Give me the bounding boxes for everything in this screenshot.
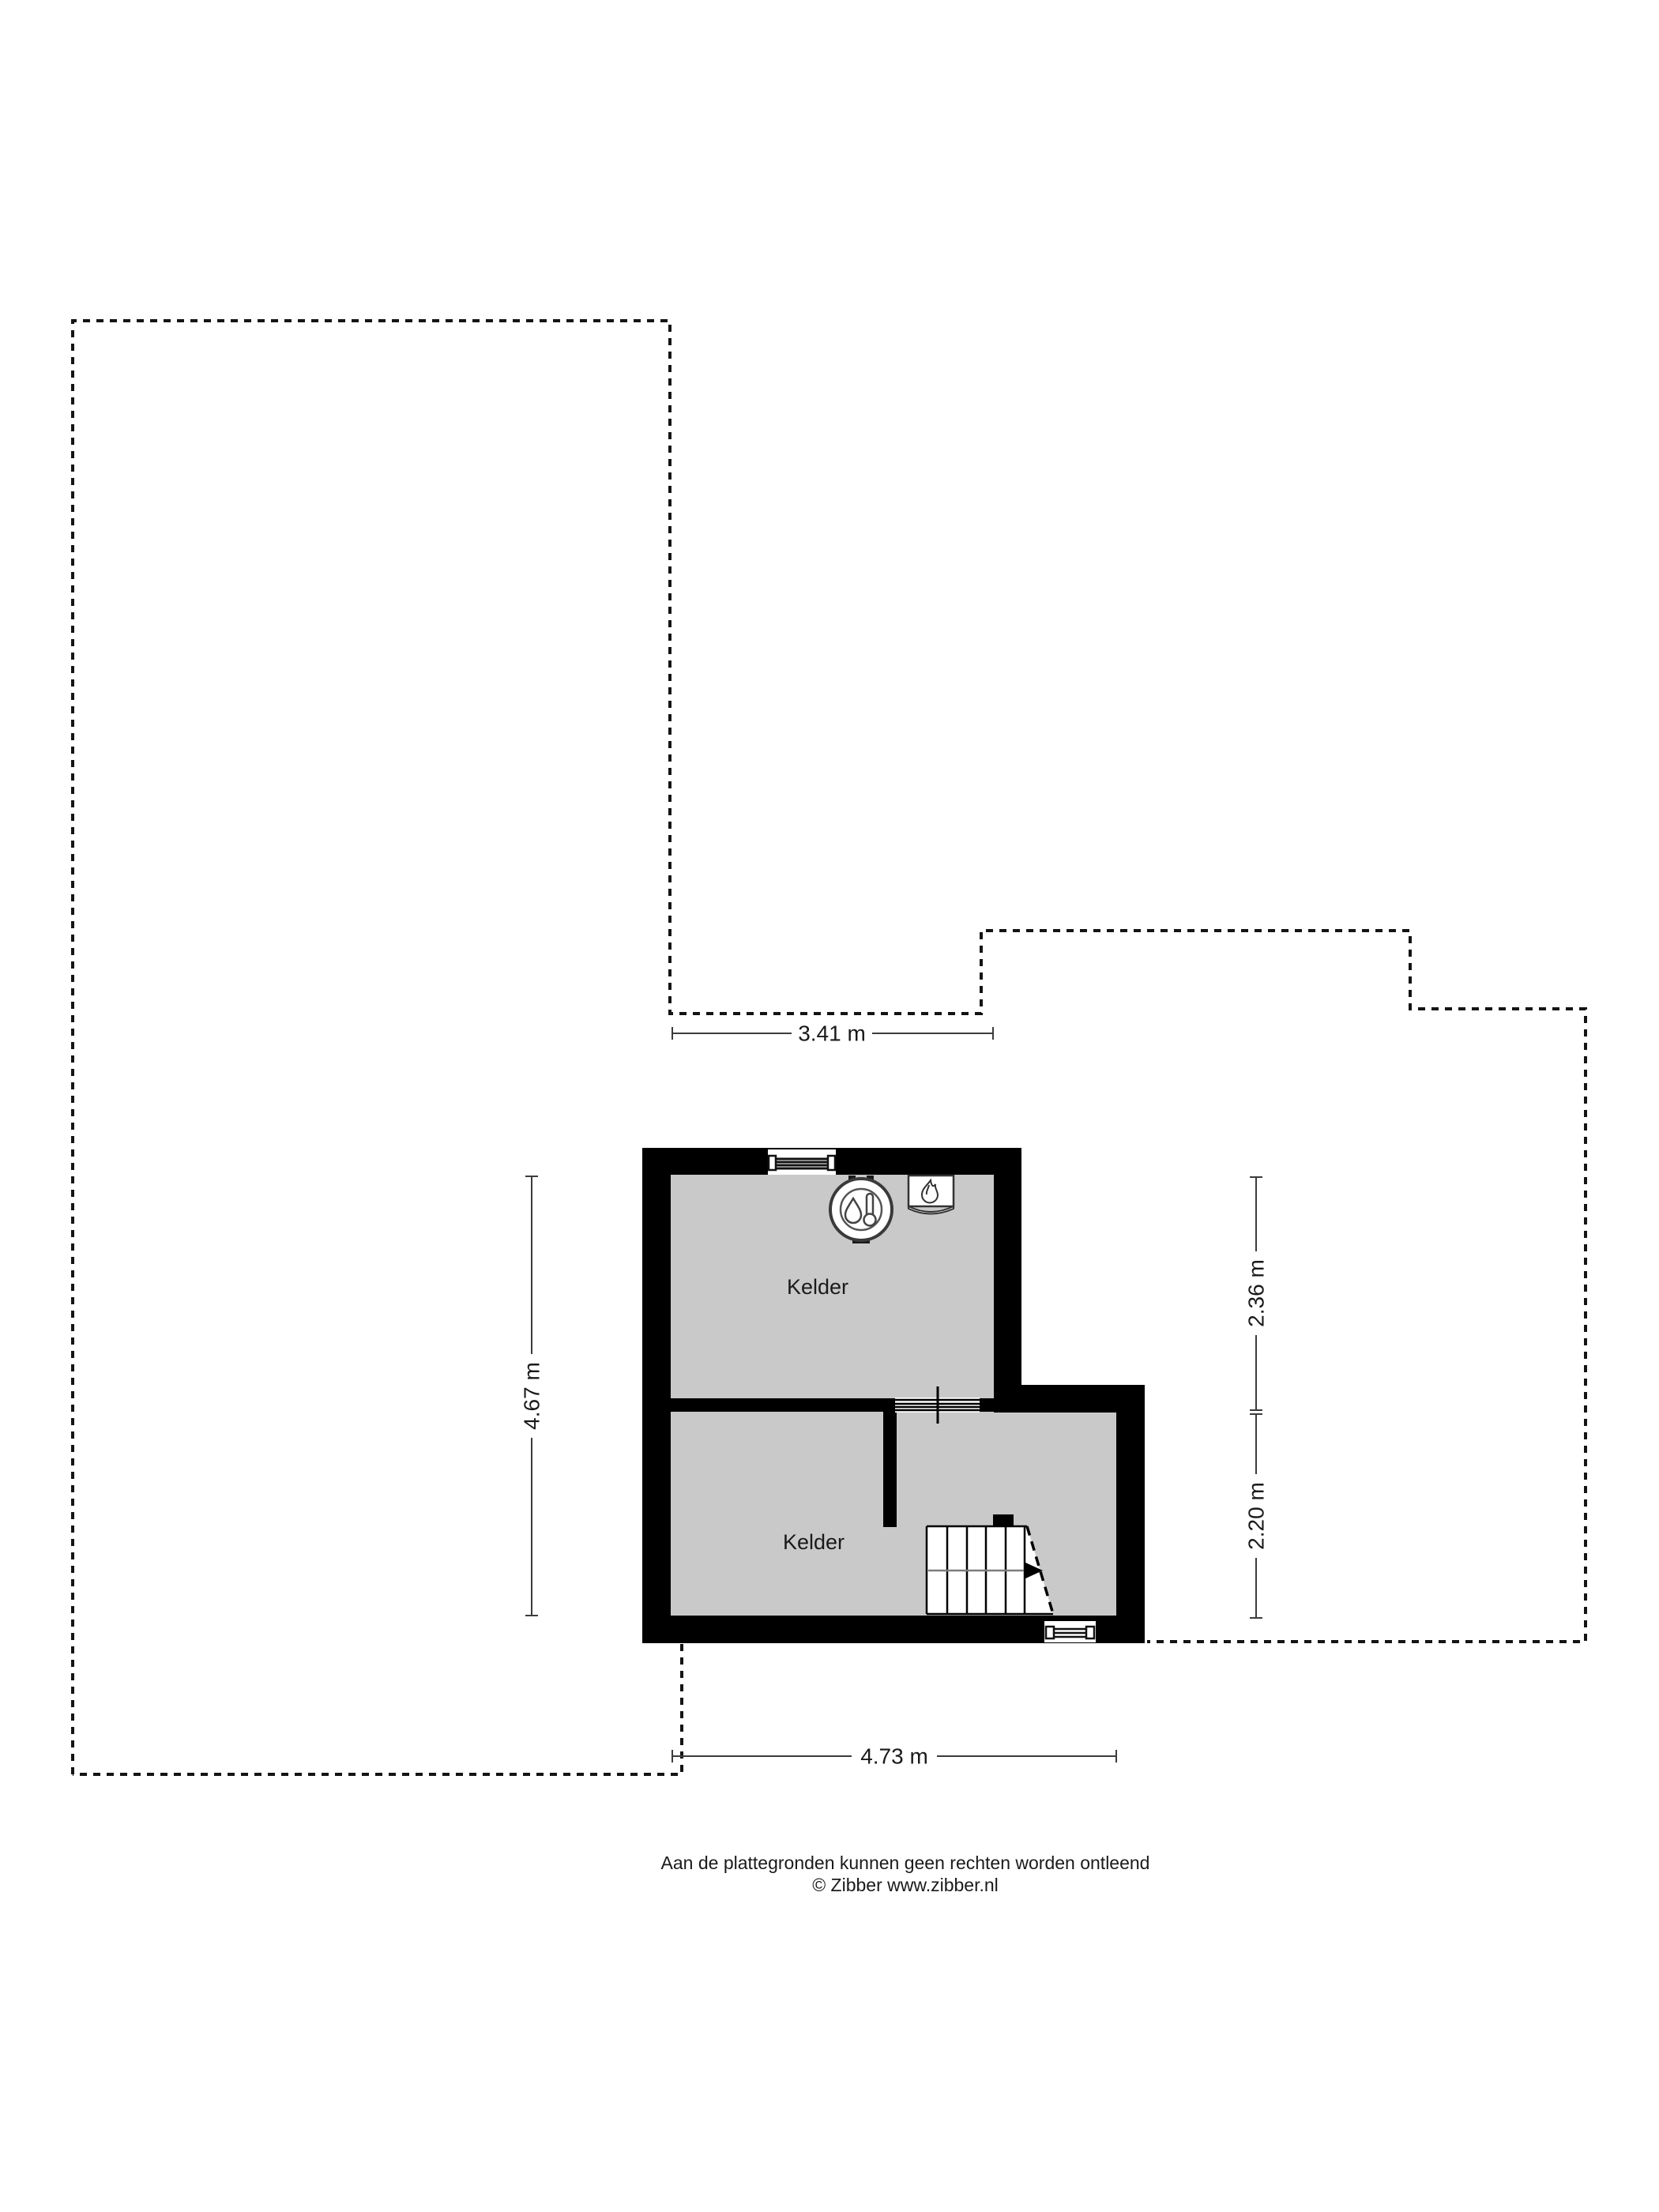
window-bottom <box>1044 1621 1096 1642</box>
boiler-thermometer-icon <box>830 1176 892 1243</box>
wall-extension-top <box>1021 1385 1145 1413</box>
dimension-right-lower-label: 2.20 m <box>1244 1482 1269 1550</box>
room-label-upper: Kelder <box>787 1275 848 1299</box>
wall-right-upper <box>994 1148 1021 1413</box>
dimension-left-label: 4.67 m <box>520 1362 544 1430</box>
dimension-bottom-label: 4.73 m <box>860 1744 928 1769</box>
dimension-top-label: 3.41 m <box>798 1021 866 1046</box>
wall-stub <box>883 1412 897 1527</box>
footer-copyright: © Zibber www.zibber.nl <box>812 1875 999 1895</box>
dimension-right-upper-label: 2.36 m <box>1244 1259 1269 1327</box>
stair-newel-post <box>993 1514 1014 1526</box>
footer-disclaimer: Aan de plattegronden kunnen geen rechten… <box>661 1853 1150 1873</box>
window-top <box>768 1149 836 1175</box>
wall-left <box>642 1148 671 1643</box>
wall-right-lower <box>1116 1413 1145 1643</box>
floorplan-canvas: 3.41 m 4.73 m 4.67 m 2.36 m 2.20 m Kelde… <box>0 0 1659 2212</box>
room-label-lower: Kelder <box>783 1530 845 1554</box>
